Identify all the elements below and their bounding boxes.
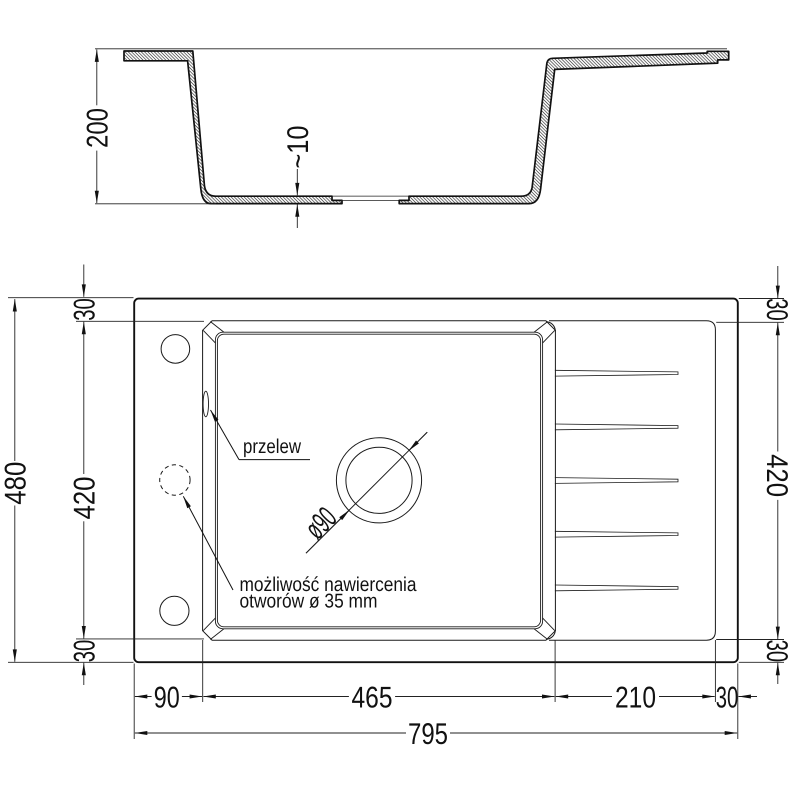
svg-text:otworów ø 35 mm: otworów ø 35 mm [240, 591, 378, 613]
svg-text:30: 30 [69, 640, 102, 663]
svg-text:90: 90 [154, 681, 180, 714]
svg-text:30: 30 [760, 640, 793, 663]
svg-text:200: 200 [82, 108, 115, 148]
svg-text:30: 30 [69, 298, 102, 321]
svg-text:przelew: przelew [243, 436, 301, 458]
svg-text:ø90: ø90 [299, 501, 344, 546]
svg-text:210: 210 [615, 681, 656, 714]
svg-text:465: 465 [352, 681, 393, 714]
svg-text:~10: ~10 [282, 126, 315, 169]
svg-text:795: 795 [408, 718, 448, 751]
svg-text:420: 420 [69, 477, 102, 520]
svg-text:480: 480 [0, 462, 33, 505]
svg-text:30: 30 [716, 681, 739, 714]
svg-text:420: 420 [760, 454, 793, 497]
svg-text:30: 30 [760, 298, 793, 321]
